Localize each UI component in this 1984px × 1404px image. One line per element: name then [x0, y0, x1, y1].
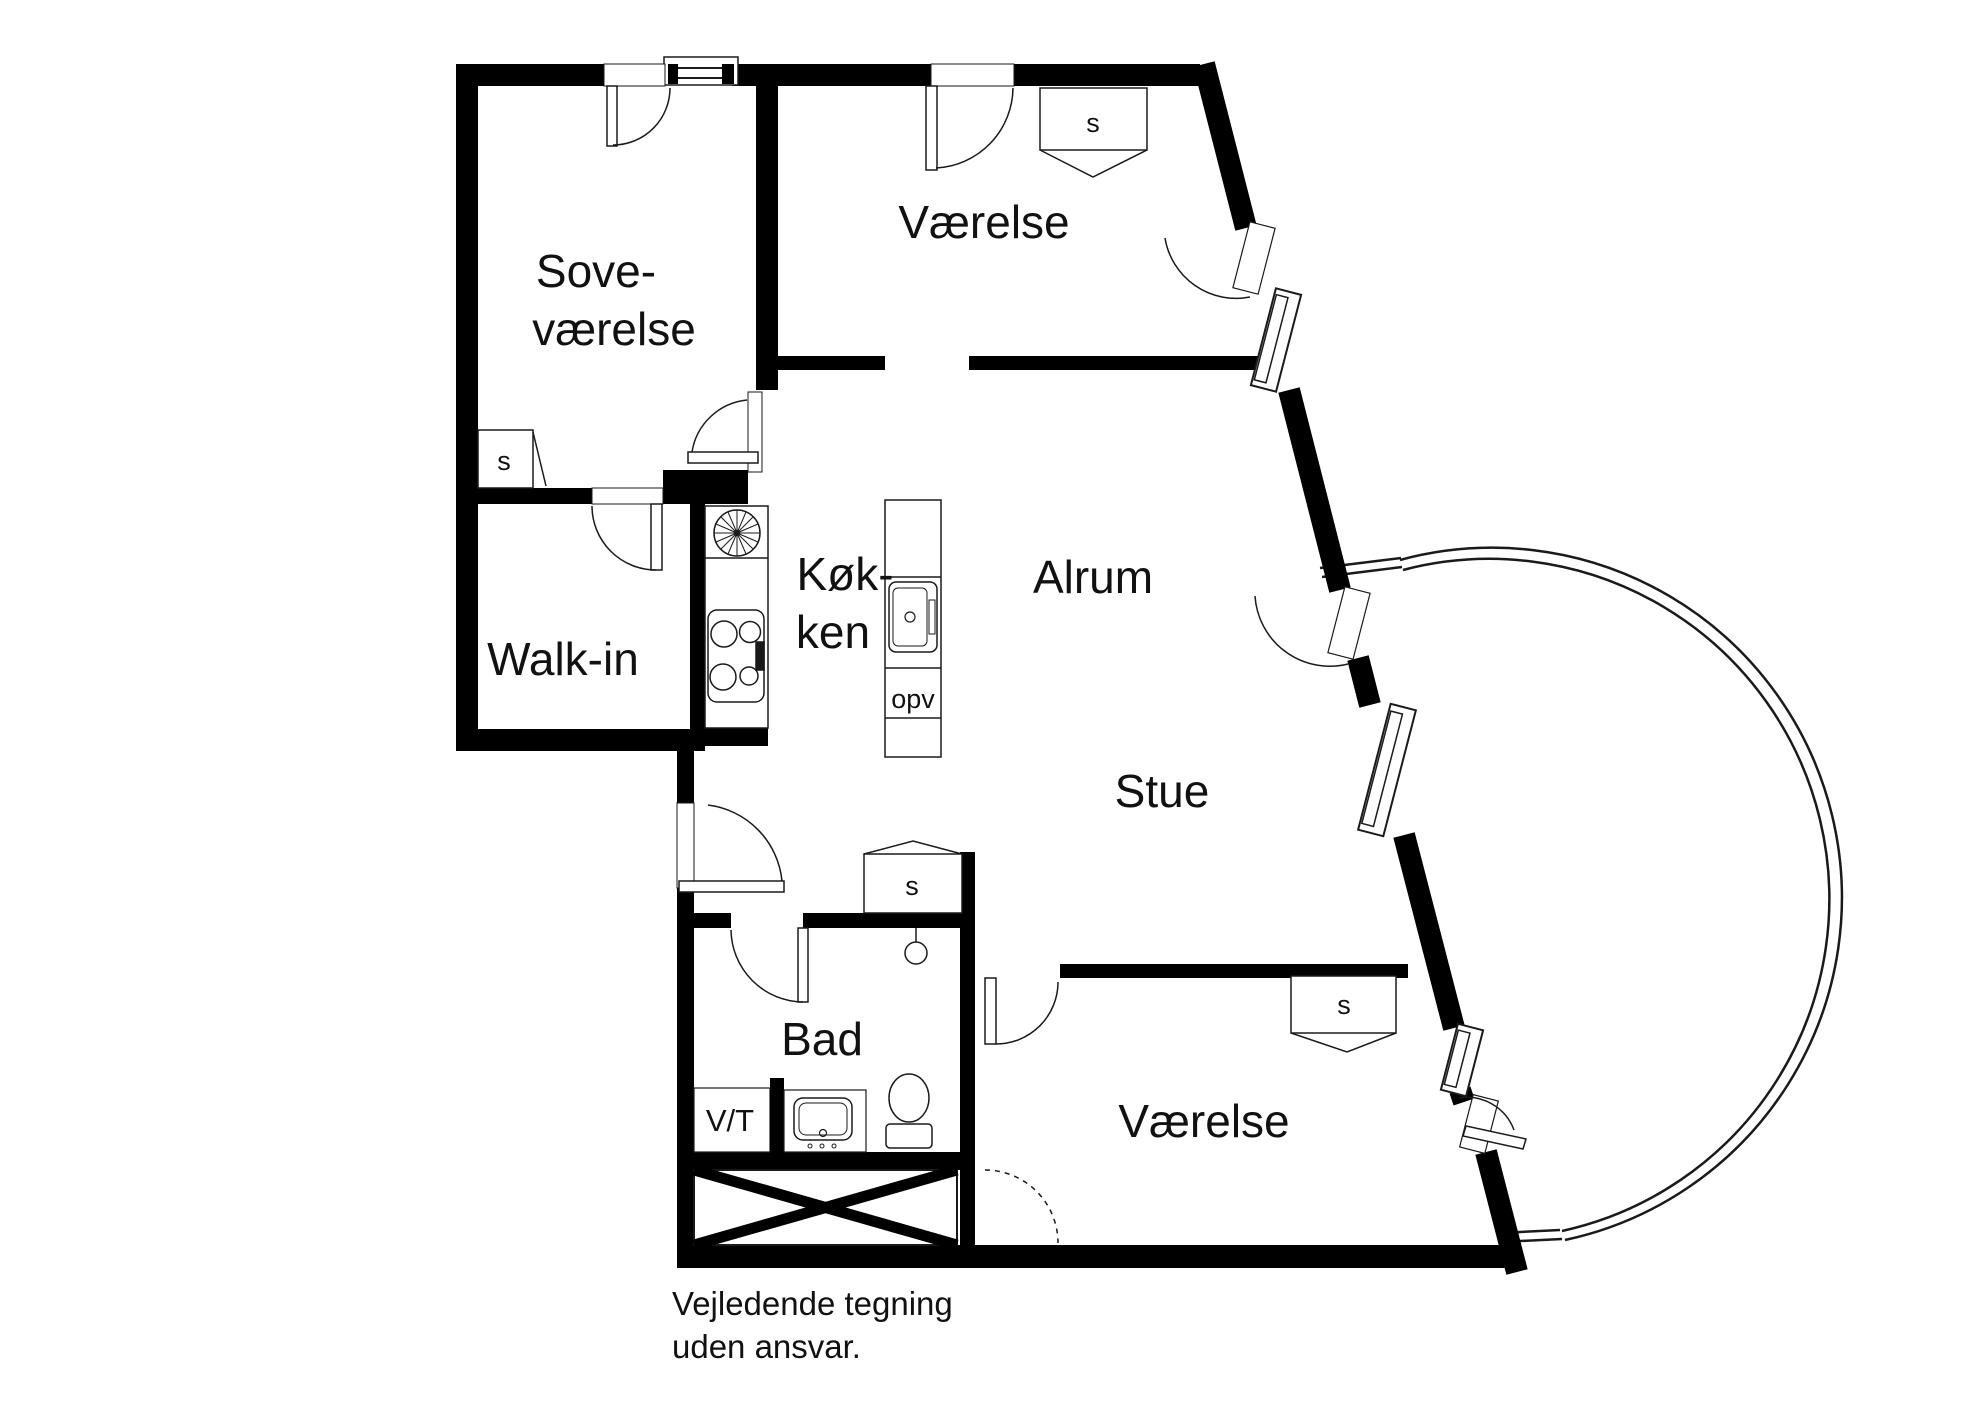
wall-lower-left-b: [677, 888, 694, 1250]
door-vaerelse-bottom-entry: [985, 978, 1058, 1044]
room-label-vaerelse-top: Værelse: [898, 196, 1069, 248]
wall-walkin-kitchen: [690, 504, 705, 728]
wall-walkin-south: [456, 729, 705, 751]
closet-icon-sovevaerelse: [478, 430, 546, 488]
door-vaerelse-bottom-terrace: [1459, 1095, 1526, 1154]
wall-top-b: [732, 64, 931, 86]
wall-bad-north-b: [803, 913, 964, 928]
footer-line2: uden ansvar.: [672, 1328, 861, 1365]
wall-vaerelse-top-south-b: [969, 356, 1270, 370]
door-walk-in: [592, 488, 663, 570]
door-bad: [731, 928, 808, 1002]
floor-plan-drawing: Sove- værelse Værelse Walk-in Køk- ken A…: [0, 0, 1984, 1404]
wall-divider-sove-vaerelse: [756, 86, 778, 390]
wall-kitchen-south: [690, 728, 768, 746]
wall-top-c: [1014, 64, 1200, 86]
room-label-sovevaerelse-line2: værelse: [532, 303, 696, 355]
door-alrum-terrace: [1255, 587, 1370, 666]
door-hall-entry: [677, 803, 784, 892]
diagonal-segment-1: [1204, 64, 1246, 228]
kitchen-sink-icon: [714, 510, 760, 556]
terrace-outline: [1320, 548, 1842, 1242]
diagonal-segment-2: [1289, 390, 1340, 590]
window-icon-vaerelse-top: [1251, 288, 1301, 391]
footer-disclaimer: Vejledende tegning uden ansvar.: [672, 1285, 953, 1365]
wall-vaerelse-top-south-a: [767, 356, 885, 370]
window-icon-vaerelse-bottom: [1441, 1024, 1483, 1096]
washer-dryer-stub-wall: [770, 1078, 784, 1152]
kitchen-island: [885, 500, 941, 757]
room-label-walk-in: Walk-in: [487, 633, 639, 685]
wall-bad-north-a: [694, 913, 731, 928]
bath-counter: [784, 1090, 866, 1152]
bathroom-sink-icon: [794, 1098, 852, 1148]
room-label-stue: Stue: [1115, 765, 1210, 817]
room-label-koekken-line2: ken: [796, 606, 870, 658]
diagonal-segment-3: [1358, 658, 1370, 705]
wall-sove-south-b: [663, 470, 748, 504]
door-dashed-arc: [985, 1170, 1058, 1243]
room-label-vaerelse-bottom: Værelse: [1118, 1095, 1289, 1147]
closet-label-vaerelse-bottom: s: [1337, 990, 1351, 1020]
kitchen: [705, 506, 768, 728]
window-icon-top: [664, 57, 738, 85]
closet-label-sovevaerelse: s: [497, 446, 511, 476]
wall-lower-left-a: [677, 751, 694, 803]
diagonal-segment-4: [1404, 835, 1454, 1028]
shower-icon: [905, 928, 927, 964]
footer-line1: Vejledende tegning: [672, 1285, 953, 1322]
shaft-cross-icon: [694, 1170, 957, 1245]
wall-top-a: [456, 64, 604, 86]
door-vaerelse-top-entry: [926, 64, 1014, 170]
closet-label-stue: s: [905, 871, 919, 901]
room-label-sovevaerelse-line1: Sove-: [536, 245, 656, 297]
wall-bad-south: [677, 1152, 975, 1170]
wall-bottom: [677, 1245, 1520, 1268]
floor-plan-page: Sove- værelse Værelse Walk-in Køk- ken A…: [0, 0, 1984, 1404]
toilet-icon: [886, 1074, 932, 1148]
washer-dryer-label: V/T: [706, 1103, 754, 1138]
dishwasher-label: opv: [891, 684, 935, 714]
window-icon-stue: [1358, 704, 1416, 836]
wall-sove-south-a: [456, 488, 592, 504]
room-label-koekken-line1: Køk-: [796, 548, 893, 600]
door-sovevaerelse-alrum: [688, 392, 762, 472]
room-label-alrum: Alrum: [1033, 551, 1153, 603]
room-label-bad: Bad: [781, 1013, 863, 1065]
closet-label-vaerelse-top: s: [1086, 108, 1100, 138]
door-sovevaerelse-top: [604, 64, 670, 146]
wall-left: [456, 64, 478, 751]
door-vaerelse-top-balcony: [1165, 222, 1275, 299]
